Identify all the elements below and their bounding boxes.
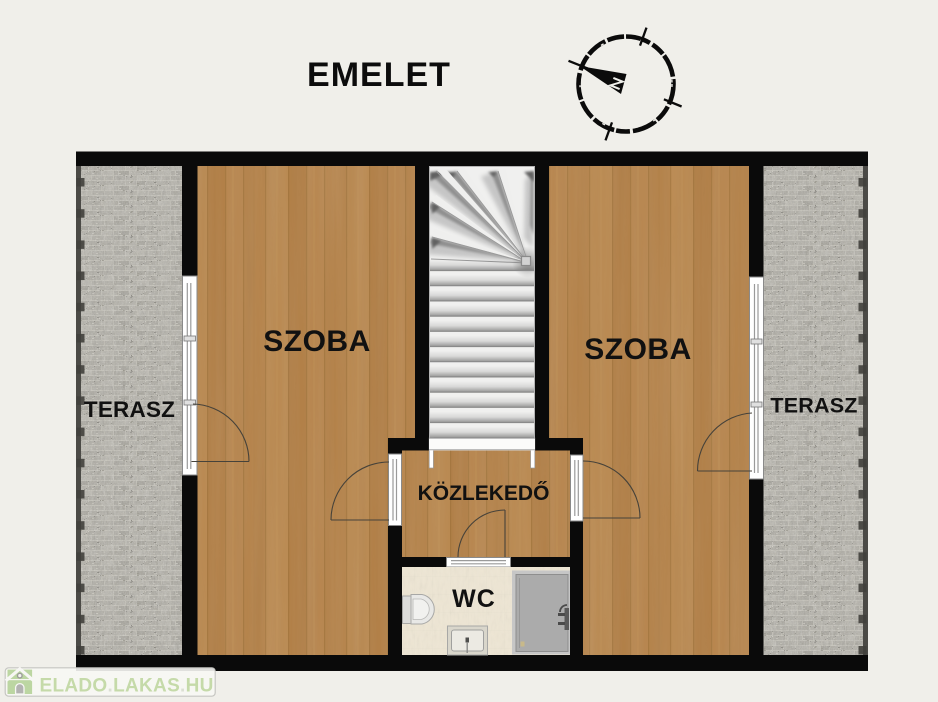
- svg-text:ELADO.LAKAS.HU: ELADO.LAKAS.HU: [40, 676, 214, 697]
- svg-text:TERASZ: TERASZ: [770, 394, 857, 418]
- svg-text:WC: WC: [452, 585, 496, 613]
- svg-text:KÖZLEKEDŐ: KÖZLEKEDŐ: [418, 482, 550, 505]
- svg-text:SZOBA: SZOBA: [263, 325, 371, 358]
- svg-text:EMELET: EMELET: [307, 56, 451, 94]
- svg-text:TERASZ: TERASZ: [84, 397, 175, 422]
- svg-text:SZOBA: SZOBA: [584, 333, 692, 366]
